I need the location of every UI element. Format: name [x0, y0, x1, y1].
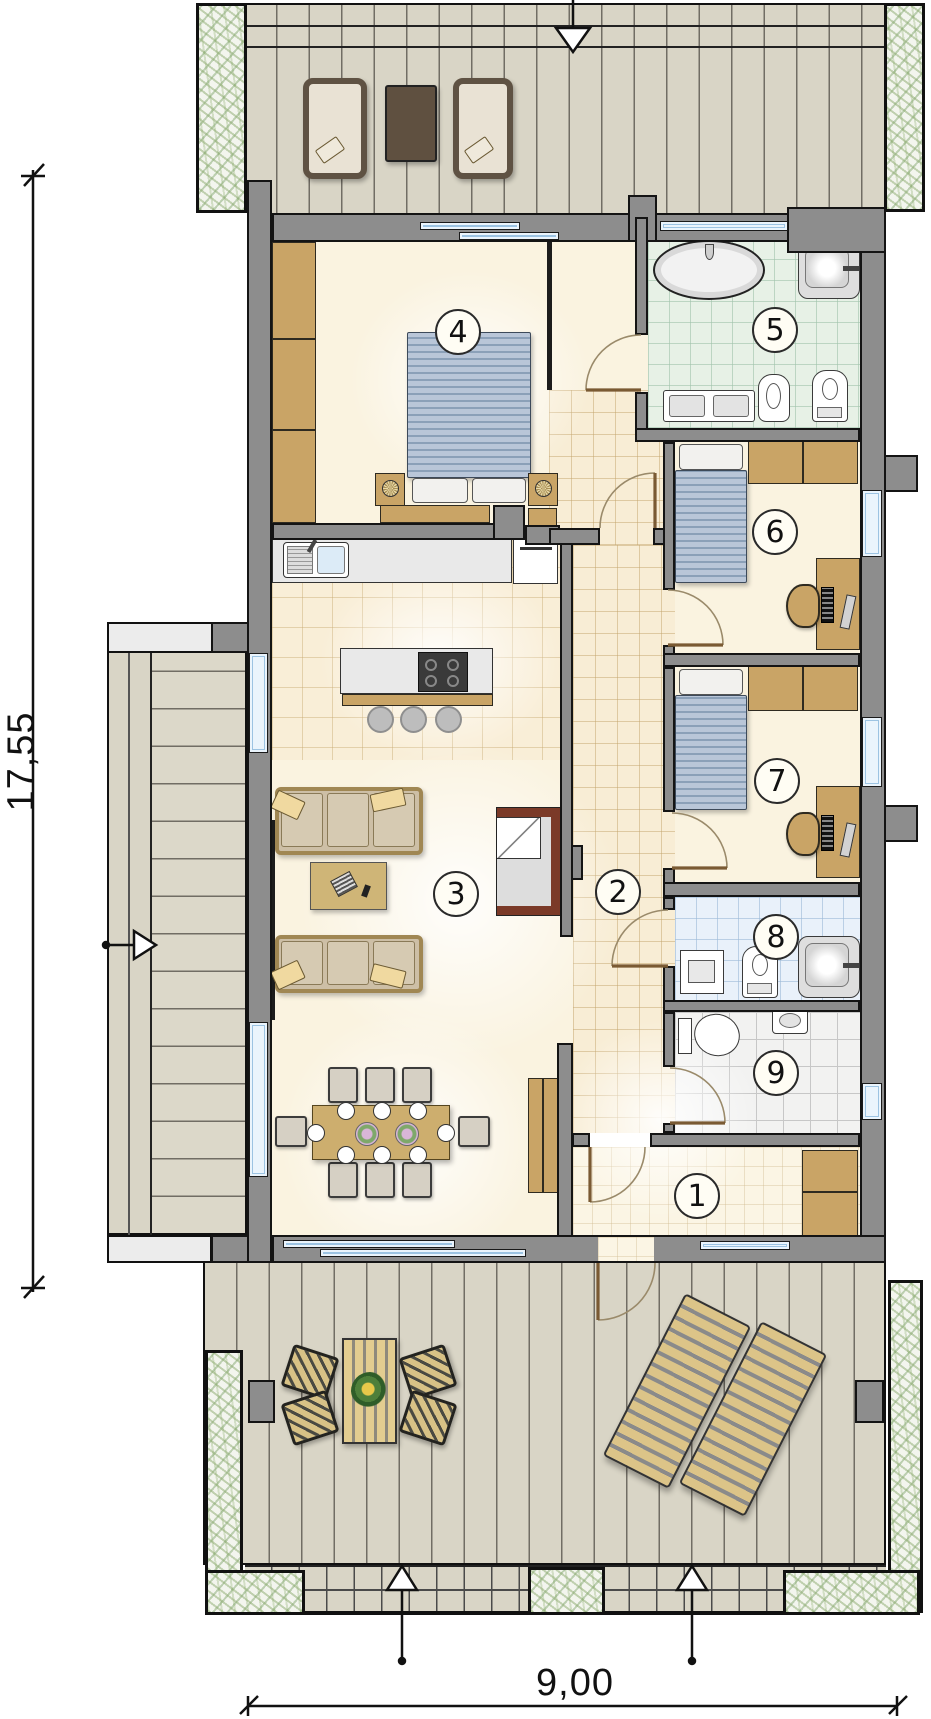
- sliding-terrace-door: [320, 1249, 526, 1257]
- centerpiece: [395, 1122, 419, 1146]
- terrace-post: [855, 1380, 884, 1423]
- desk: [816, 558, 860, 650]
- bar-stool: [435, 706, 462, 733]
- place-setting: [337, 1102, 355, 1120]
- planting-bed: [884, 3, 925, 212]
- deck-landing: [107, 622, 213, 653]
- wall-partition: [547, 242, 552, 390]
- bed-bench: [380, 505, 490, 523]
- entry-door-opening: [598, 1237, 654, 1261]
- bed-pillow: [679, 444, 743, 470]
- wardrobe: [272, 242, 316, 523]
- dining-table: [312, 1105, 450, 1160]
- table-lamp: [382, 480, 399, 497]
- room-number: 4: [448, 315, 467, 350]
- dining-chair: [328, 1162, 358, 1198]
- monitor: [840, 594, 857, 629]
- cooktop: [418, 652, 468, 692]
- wall-pilaster: [884, 805, 918, 842]
- place-setting: [307, 1124, 325, 1142]
- room-label-8: 8: [753, 914, 799, 960]
- bar-stool: [367, 706, 394, 733]
- window: [862, 717, 882, 787]
- wall: [663, 897, 675, 910]
- planting-bed: [205, 1570, 305, 1615]
- place-setting: [373, 1146, 391, 1164]
- planting-bed: [783, 1570, 920, 1615]
- room-2-hall-floor: [573, 545, 675, 1133]
- room-label-7: 7: [754, 758, 800, 804]
- bathtub: [653, 240, 765, 300]
- room-number: 2: [608, 875, 627, 910]
- top-terrace-step-line: [245, 25, 886, 27]
- room-number: 5: [765, 313, 784, 348]
- pillow: [464, 136, 494, 164]
- toilet: [812, 370, 848, 422]
- deck-landing: [107, 1235, 212, 1263]
- dimension-label-horizontal: 9,00: [505, 1662, 645, 1705]
- wall: [787, 207, 886, 253]
- potted-plant: [351, 1372, 389, 1410]
- sofa: [275, 935, 423, 993]
- dining-chair: [365, 1162, 395, 1198]
- monitor: [840, 822, 857, 857]
- table-lamp: [535, 480, 552, 497]
- bidet: [758, 374, 790, 422]
- fireplace: [497, 808, 560, 915]
- wardrobe: [748, 665, 858, 711]
- sofa: [275, 787, 423, 855]
- desk: [816, 786, 860, 878]
- place-setting: [409, 1102, 427, 1120]
- dining-chair: [402, 1067, 432, 1103]
- wall: [572, 1133, 590, 1147]
- wall: [663, 667, 675, 812]
- place-setting: [409, 1146, 427, 1164]
- room-label-5: 5: [752, 307, 798, 353]
- lounge-sofa: [303, 78, 367, 179]
- window: [862, 490, 882, 557]
- toilet: [678, 1018, 692, 1054]
- wall: [272, 523, 525, 540]
- sliding-terrace-door: [283, 1240, 455, 1248]
- wardrobe: [748, 438, 858, 484]
- room-label-2: 2: [595, 869, 641, 915]
- room-number: 1: [687, 1179, 706, 1214]
- entry-wardrobe: [802, 1150, 858, 1236]
- room-label-3: 3: [433, 871, 479, 917]
- wall: [663, 442, 675, 590]
- bed-pillow: [472, 478, 526, 503]
- planting-bed: [888, 1280, 923, 1613]
- window: [700, 1241, 790, 1250]
- wall: [549, 528, 600, 545]
- bar-stool: [400, 706, 427, 733]
- single-bed: [675, 470, 747, 583]
- window: [249, 653, 268, 753]
- wall: [557, 1043, 573, 1237]
- centerpiece: [355, 1122, 379, 1146]
- place-setting: [437, 1124, 455, 1142]
- room-number: 9: [766, 1056, 785, 1091]
- wall: [663, 1123, 675, 1133]
- room-number: 8: [766, 920, 785, 955]
- window: [862, 1083, 882, 1120]
- wall: [211, 622, 251, 653]
- dimension-label-vertical: 17,55: [1, 702, 44, 822]
- sliding-terrace-door: [420, 222, 520, 230]
- dining-chair: [458, 1116, 490, 1147]
- desk-chair: [786, 584, 820, 628]
- dining-chair: [365, 1067, 395, 1103]
- faucet-icon: [705, 244, 714, 260]
- place-setting: [337, 1146, 355, 1164]
- room-number: 3: [446, 877, 465, 912]
- top-terrace-step-line: [245, 46, 886, 48]
- planting-bed: [528, 1567, 605, 1615]
- double-washbasin: [663, 390, 755, 422]
- shower: [798, 936, 860, 998]
- room-number: 7: [767, 764, 786, 799]
- remote: [361, 884, 371, 897]
- room-number: 6: [765, 515, 784, 550]
- lounge-sofa: [453, 78, 513, 179]
- desk-chair: [786, 812, 820, 856]
- room-label-1: 1: [674, 1173, 720, 1219]
- kitchen-island: [340, 648, 493, 694]
- side-deck-planks: [152, 653, 245, 1233]
- planting-bed: [196, 3, 247, 213]
- dining-chair: [275, 1116, 307, 1147]
- wall: [635, 217, 648, 335]
- pillow: [315, 136, 345, 164]
- window: [660, 221, 788, 231]
- sliding-terrace-door: [459, 232, 559, 240]
- kitchen-sink: [283, 542, 349, 578]
- island-bar: [342, 694, 493, 706]
- coffee-table: [310, 862, 387, 910]
- terrace-post: [248, 1380, 275, 1423]
- room-label-4: 4: [435, 309, 481, 355]
- double-bed: [407, 332, 531, 478]
- wall: [663, 1000, 860, 1012]
- washing-machine: [680, 950, 724, 994]
- wall-pilaster: [884, 455, 918, 492]
- magazine: [330, 871, 358, 897]
- bed-pillow: [679, 669, 743, 695]
- faucet-icon: [843, 963, 859, 968]
- floor-plan: 1 2 3 4 5 6 7 8 9 17,55 9,00: [0, 0, 931, 1719]
- wall: [493, 505, 525, 540]
- hall-cabinet: [528, 1078, 558, 1193]
- place-setting: [373, 1102, 391, 1120]
- wall: [663, 882, 860, 897]
- wall: [635, 428, 860, 442]
- keyboard: [821, 815, 834, 851]
- bed-pillow: [412, 478, 468, 503]
- wall: [663, 653, 860, 667]
- side-deck-edge-line: [128, 651, 130, 1235]
- room-label-6: 6: [752, 509, 798, 555]
- window: [249, 1022, 268, 1177]
- wall: [663, 1012, 675, 1067]
- keyboard: [821, 587, 834, 623]
- single-bed: [675, 695, 747, 810]
- faucet-icon: [843, 266, 859, 271]
- wall: [650, 1133, 860, 1147]
- dining-chair: [328, 1067, 358, 1103]
- outdoor-coffee-table: [385, 85, 437, 162]
- room-label-9: 9: [753, 1050, 799, 1096]
- wall: [560, 537, 573, 937]
- dining-chair: [402, 1162, 432, 1198]
